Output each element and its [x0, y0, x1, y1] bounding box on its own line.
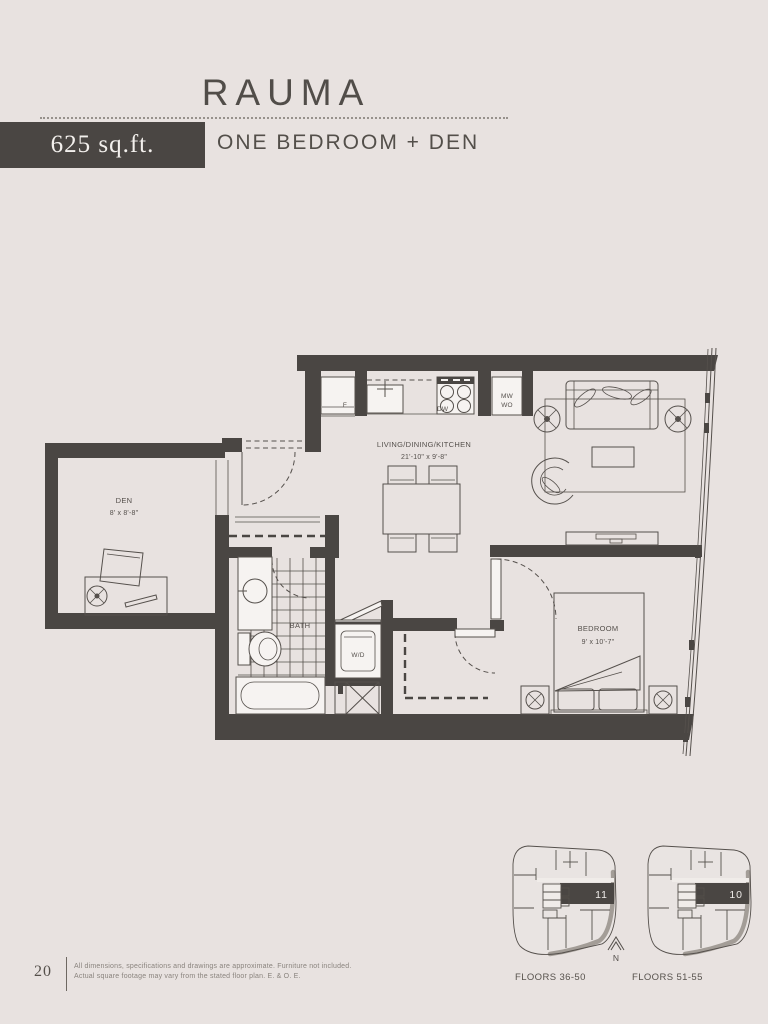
- kitchen: F DW MW WO: [321, 377, 522, 416]
- footer: 20 All dimensions, specifications and dr…: [0, 954, 768, 998]
- den-opening-frame: [216, 460, 228, 515]
- bedroom-dims: 9' x 10'-7": [582, 639, 615, 646]
- bathtub: [236, 677, 325, 714]
- bath-door-arc: [272, 560, 310, 598]
- bathroom: BATH: [236, 556, 326, 714]
- page-number: 20: [34, 963, 52, 981]
- foyer-closet: [229, 517, 338, 536]
- fridge: [321, 377, 355, 416]
- keyplan-left: 11: [513, 846, 616, 954]
- laundry-label: W/D: [351, 652, 364, 659]
- living-label: LIVING/DINING/KITCHEN: [377, 440, 471, 449]
- den-label: DEN: [116, 496, 133, 505]
- den: DEN 8' x 8'-8": [85, 496, 167, 615]
- microwave-label: MW: [501, 393, 514, 400]
- side-table-lamp-right: [665, 406, 691, 432]
- nightstand-right: [649, 686, 677, 714]
- brochure-page: RAUMA 625 sq.ft. ONE BEDROOM + DEN: [0, 0, 768, 1024]
- dining-table: [383, 466, 460, 552]
- footer-divider: [66, 957, 67, 991]
- keyplan-right-unit: 10: [729, 889, 743, 901]
- fridge-label: F: [343, 402, 347, 409]
- disclaimer-line-1: All dimensions, specifications and drawi…: [74, 962, 352, 972]
- shaft-x-box: [335, 682, 379, 714]
- bath-label: BATH: [290, 621, 311, 630]
- floorplan-svg: F DW MW WO LIVING/DINING/KITCHEN 21'-10"…: [0, 0, 768, 1024]
- living-dims: 21'-10" x 9'-8": [401, 454, 447, 461]
- den-lamp: [87, 586, 107, 606]
- laundry: W/D: [335, 601, 382, 714]
- wall-oven-label: WO: [501, 402, 513, 409]
- sofa: [566, 381, 658, 429]
- den-dims: 8' x 8'-8": [110, 510, 139, 517]
- den-chair: [100, 549, 143, 586]
- dishwasher-label: DW: [437, 406, 449, 413]
- disclaimer: All dimensions, specifications and drawi…: [74, 962, 352, 981]
- coffee-table: [592, 447, 634, 467]
- bath-vanity: [238, 557, 272, 630]
- bed: [551, 593, 647, 715]
- toilet: [238, 632, 281, 666]
- tv-console: [566, 532, 658, 545]
- keyplan-right: 10: [648, 846, 751, 954]
- disclaimer-line-2: Actual square footage may vary from the …: [74, 972, 352, 982]
- bedroom-door: [491, 559, 556, 619]
- bedroom: BEDROOM 9' x 10'-7": [405, 559, 677, 715]
- armchair: [532, 458, 573, 504]
- nightstand-left: [521, 686, 549, 714]
- entry-door: [242, 441, 303, 505]
- side-table-lamp-left: [534, 406, 560, 432]
- living-dining: LIVING/DINING/KITCHEN 21'-10" x 9'-8": [377, 381, 691, 552]
- bedroom-closet: [405, 629, 495, 698]
- bedroom-label: BEDROOM: [578, 624, 619, 633]
- keyplan-left-unit: 11: [595, 889, 608, 901]
